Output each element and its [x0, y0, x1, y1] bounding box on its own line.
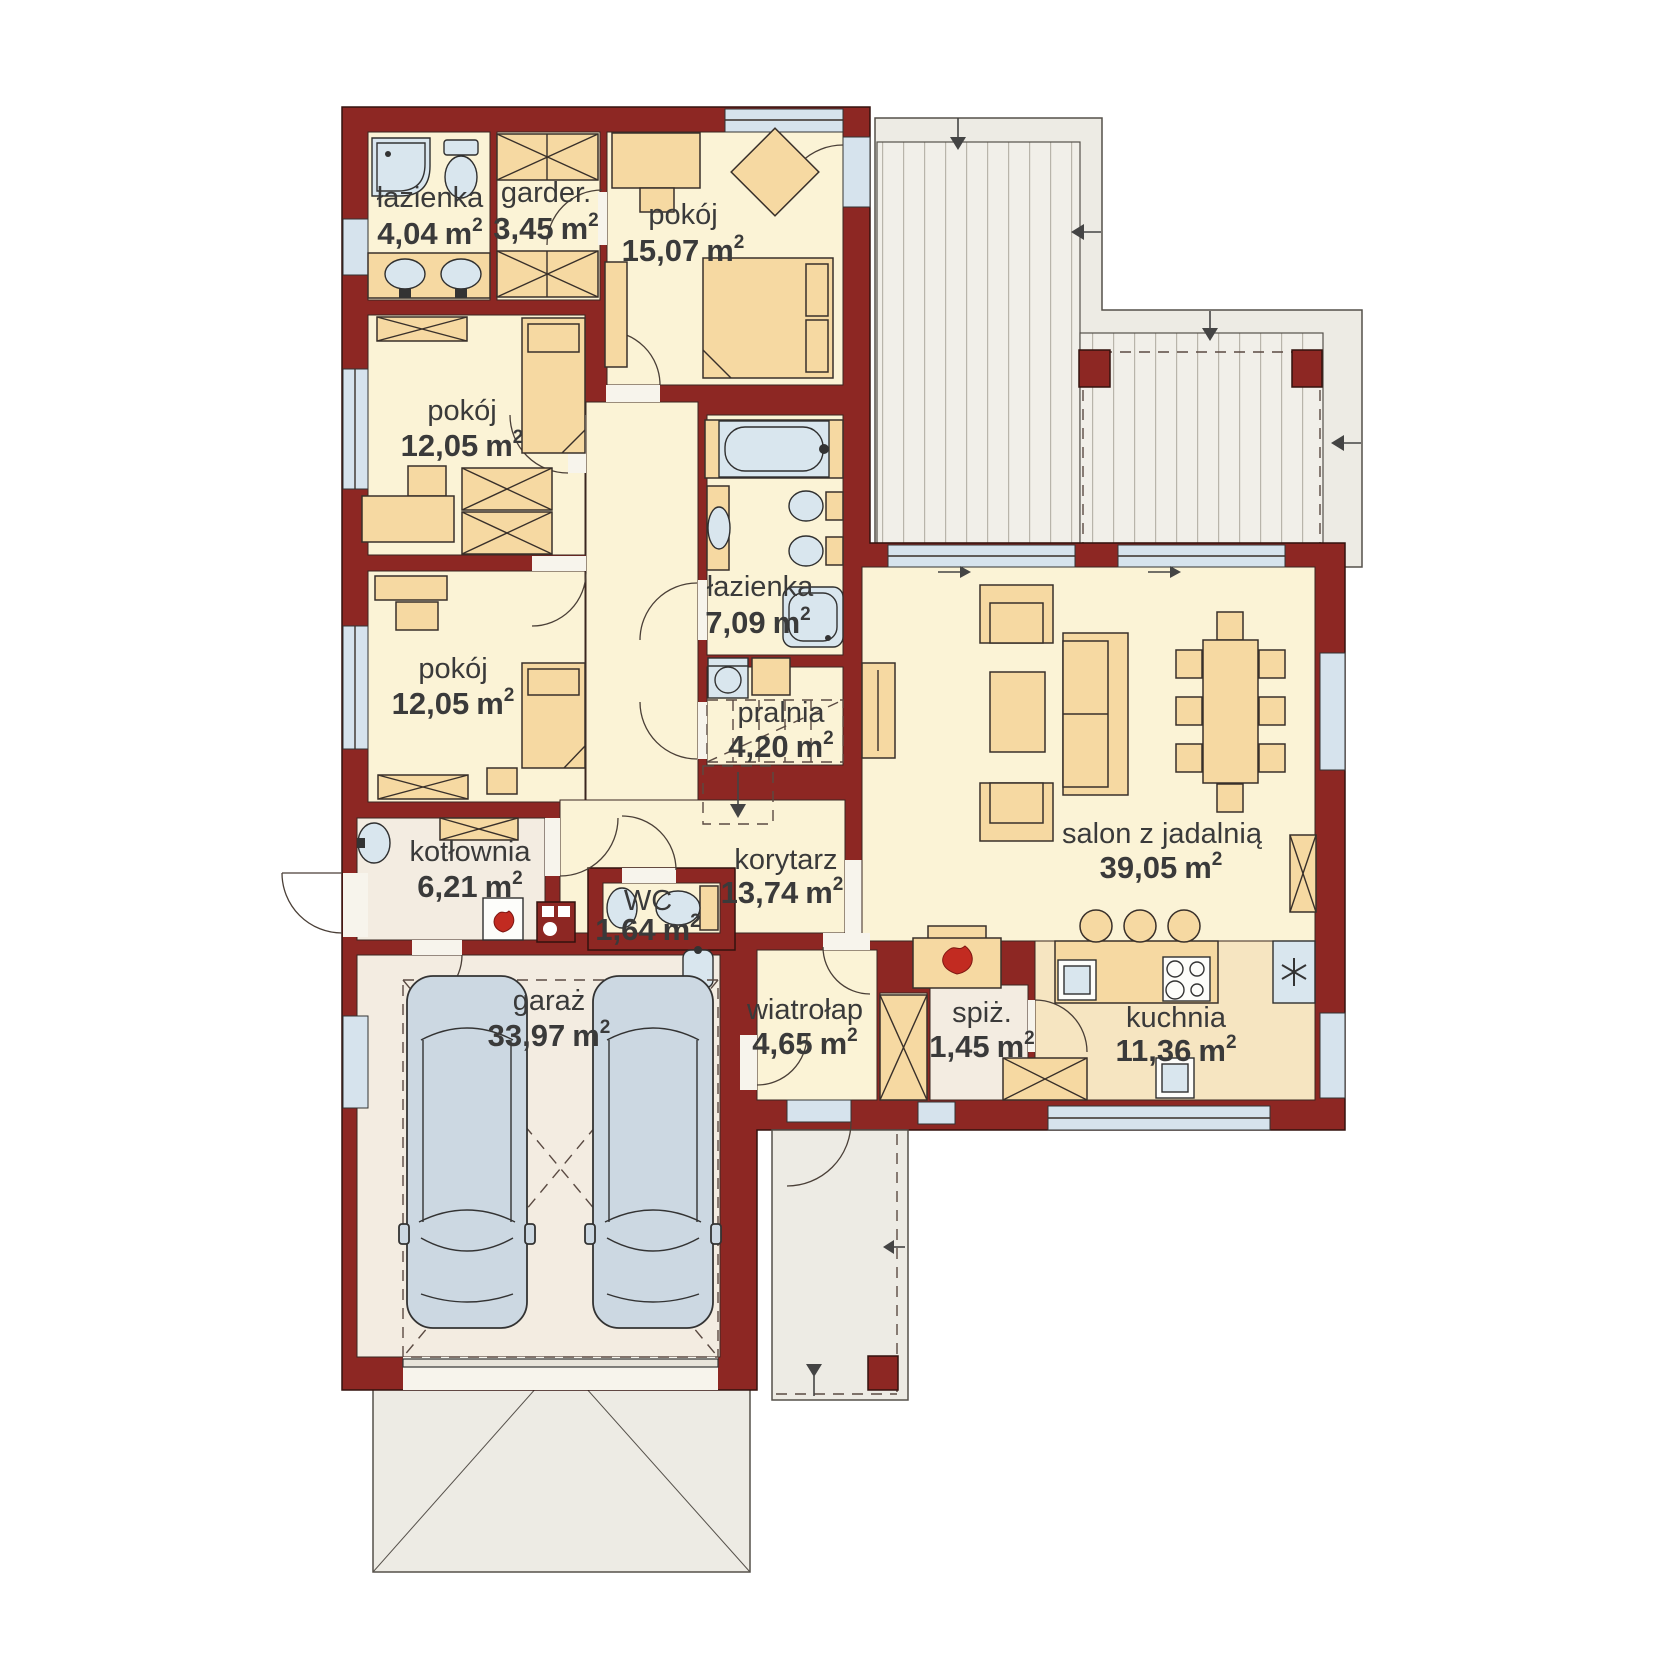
- room-area: 4,04m2: [377, 215, 483, 251]
- sink-icon: [707, 486, 730, 570]
- armchair-icon: [980, 783, 1053, 841]
- room-name: kuchnia: [1126, 1002, 1227, 1034]
- side-table-icon: [487, 768, 517, 794]
- wardrobe-icon: [462, 468, 552, 510]
- wardrobe-icon: [880, 995, 927, 1100]
- window: [343, 219, 368, 275]
- room-area: 13,74m2: [721, 874, 844, 910]
- window: [343, 1016, 368, 1108]
- room-name: pokój: [418, 653, 487, 685]
- boiler-icon: [483, 898, 523, 940]
- floor-plan-drawing: łazienka 4,04m2 garder. 3,45m2 pokój 15,…: [0, 0, 1680, 1680]
- single-bed-icon: [522, 663, 585, 768]
- room-area: 12,05m2: [401, 427, 524, 463]
- porch-pillar: [868, 1356, 898, 1390]
- room-name: garaż: [513, 985, 586, 1017]
- bar-stool-icon: [1080, 910, 1200, 942]
- terrace-deck-lower: [1080, 333, 1323, 543]
- garage-door: [403, 1359, 718, 1367]
- wardrobe-icon: [1290, 835, 1316, 912]
- terrace-pillar: [1079, 350, 1110, 387]
- window: [1320, 653, 1345, 770]
- stove-icon: [1163, 957, 1210, 1001]
- window: [918, 1102, 955, 1124]
- coffee-table-icon: [990, 672, 1045, 752]
- sofa-icon: [1063, 633, 1128, 795]
- room-name: łazienka: [707, 571, 814, 603]
- room-area: 4,20m2: [728, 728, 834, 764]
- double-sink-counter-icon: [368, 253, 490, 298]
- room-name: wiatrołap: [746, 994, 863, 1026]
- single-bed-icon: [522, 318, 585, 453]
- bathtub-icon: [705, 420, 843, 478]
- room-area: 1,64m2: [595, 911, 701, 947]
- room-area: 12,05m2: [392, 685, 515, 721]
- room-area: 1,45m2: [929, 1028, 1035, 1064]
- room-area: 6,21m2: [417, 868, 523, 904]
- room-area: 4,65m2: [752, 1025, 858, 1061]
- armchair-icon: [980, 585, 1053, 643]
- entrance-door: [787, 1100, 851, 1122]
- room-area: 33,97m2: [488, 1017, 611, 1053]
- wardrobe-icon: [378, 775, 468, 799]
- room-area: 11,36m2: [1115, 1032, 1236, 1068]
- cabinet-icon: [605, 262, 627, 367]
- room-area: 39,05m2: [1100, 849, 1223, 885]
- window: [1320, 1013, 1345, 1098]
- terrace: [875, 118, 1362, 567]
- laundry-cabinet-icon: [752, 658, 790, 695]
- room-area: 7,09m2: [705, 604, 811, 640]
- wardrobe-icon: [462, 512, 552, 554]
- fridge-icon: [1273, 941, 1315, 1003]
- room-name: pokój: [648, 199, 717, 231]
- floor-plan-page: łazienka 4,04m2 garder. 3,45m2 pokój 15,…: [0, 0, 1680, 1680]
- chimney-icon: [537, 902, 575, 942]
- wardrobe-icon: [497, 251, 598, 297]
- entry-porch: [772, 1130, 908, 1400]
- washing-machine-icon: [708, 658, 748, 698]
- bidet-icon: [789, 536, 843, 566]
- floor-korytarz-north: [586, 402, 698, 800]
- room-name: pokój: [427, 395, 496, 427]
- room-name: salon z jadalnią: [1062, 818, 1263, 850]
- room-name: spiż.: [952, 997, 1012, 1029]
- room-area: 15,07m2: [622, 232, 745, 268]
- room-name: garder.: [501, 177, 591, 209]
- room-area: 3,45m2: [493, 210, 599, 246]
- wardrobe-icon: [377, 317, 467, 341]
- wardrobe-icon: [1003, 1058, 1087, 1100]
- double-bed-icon: [703, 258, 833, 378]
- terrace-pillar: [1292, 350, 1322, 387]
- terrace-deck-upper: [877, 142, 1080, 543]
- wardrobe-icon: [497, 134, 598, 180]
- room-name: korytarz: [734, 844, 837, 876]
- room-name: pralnia: [737, 697, 825, 729]
- tv-cabinet-icon: [862, 663, 895, 758]
- toilet-icon: [789, 491, 843, 521]
- room-name: kotłownia: [410, 836, 532, 868]
- sink-icon: [357, 823, 390, 863]
- room-name: łazienka: [377, 182, 484, 214]
- terrace-door: [843, 137, 870, 207]
